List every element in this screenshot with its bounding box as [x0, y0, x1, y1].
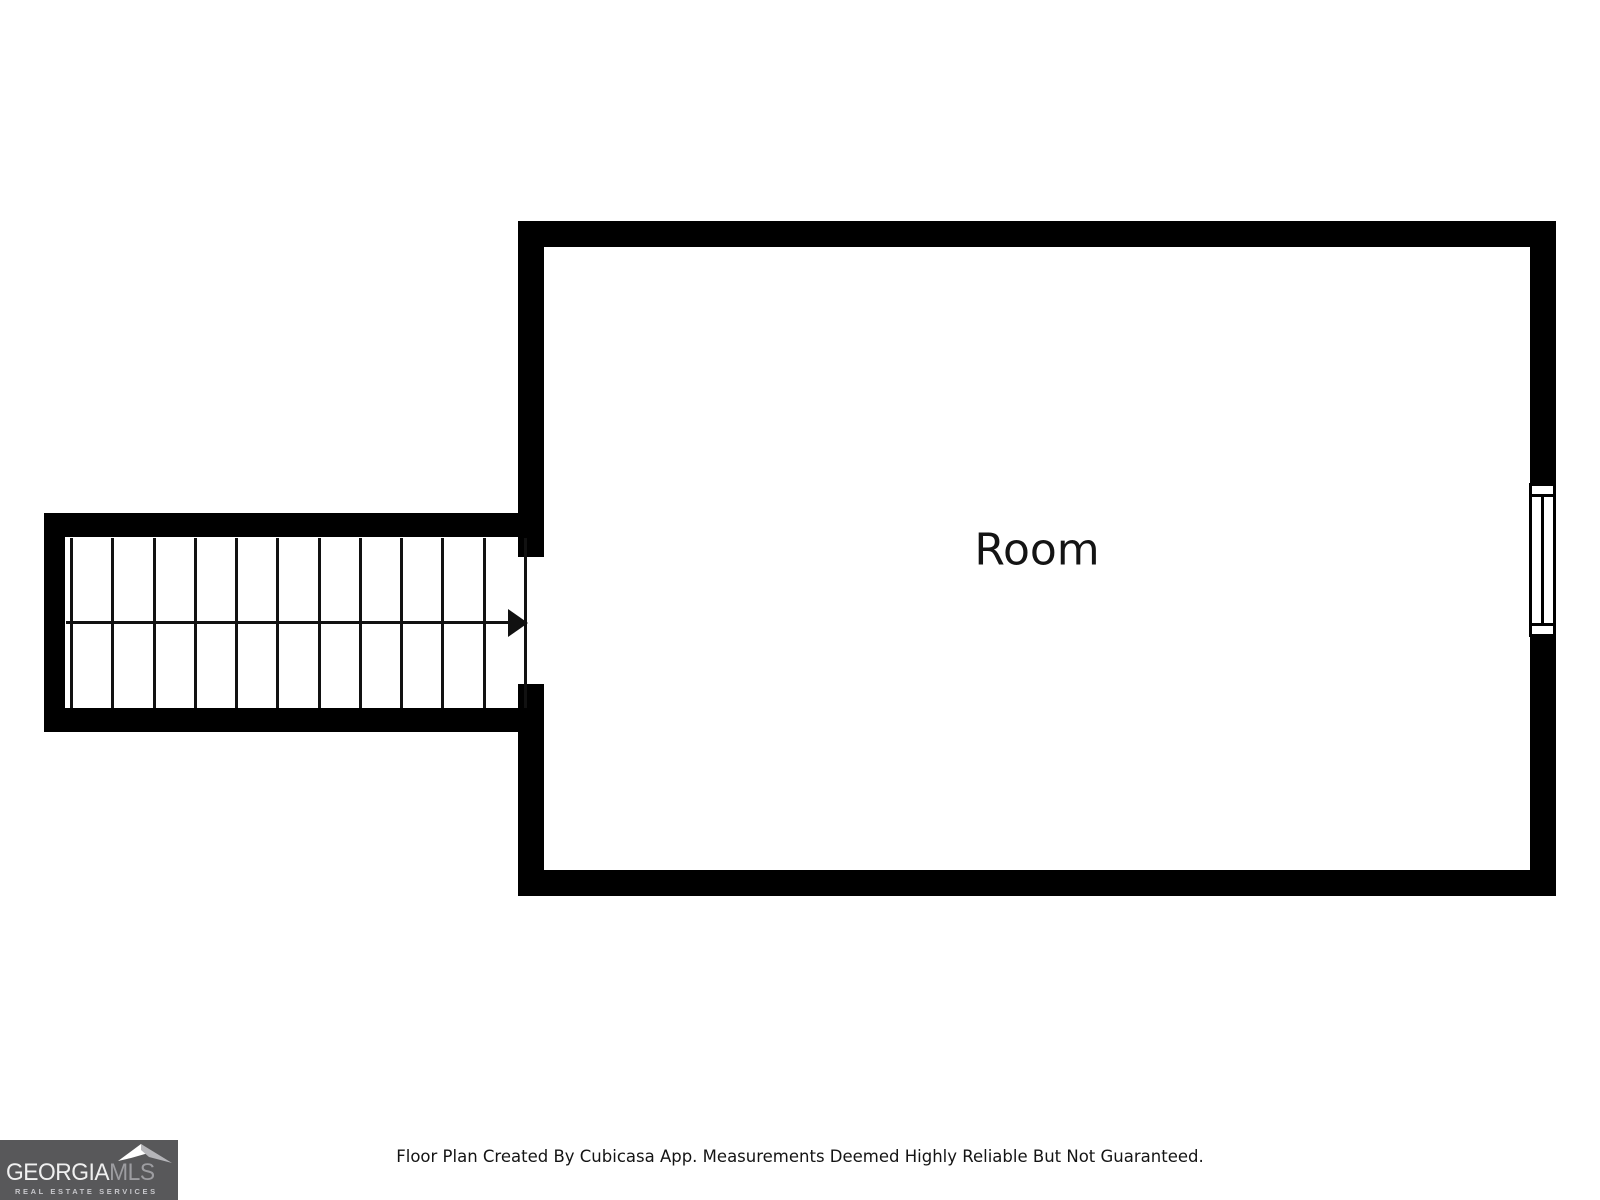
floor-plan-canvas: Room Floor Plan Created By Cubicasa App.…: [0, 0, 1600, 1200]
room-label: Room: [974, 525, 1099, 576]
logo-brand-secondary: MLS: [109, 1159, 154, 1186]
window-icon: [1529, 483, 1556, 637]
footer-disclaimer: Floor Plan Created By Cubicasa App. Meas…: [0, 1147, 1600, 1166]
window-pane-center-line: [1541, 497, 1544, 623]
stair-corridor-wall-top: [44, 513, 518, 537]
room-wall-left-upper: [518, 221, 544, 557]
logo-tagline: REAL ESTATE SERVICES: [15, 1187, 158, 1196]
room-wall-bottom: [518, 870, 1556, 896]
room-wall-top: [518, 221, 1556, 247]
logo-wordmark: GEORGIAMLS: [6, 1161, 155, 1185]
arrow-right-icon: [66, 621, 509, 624]
stair-corridor-wall-bottom: [44, 708, 518, 732]
logo-brand-primary: GEORGIA: [6, 1159, 109, 1186]
arrow-right-head-icon: [508, 609, 528, 637]
stair-corridor-wall-left: [44, 513, 65, 732]
window-frame-bottom-line: [1532, 623, 1553, 626]
georgia-mls-logo: GEORGIAMLS REAL ESTATE SERVICES: [0, 1140, 178, 1200]
room-wall-left-lower: [518, 684, 544, 896]
